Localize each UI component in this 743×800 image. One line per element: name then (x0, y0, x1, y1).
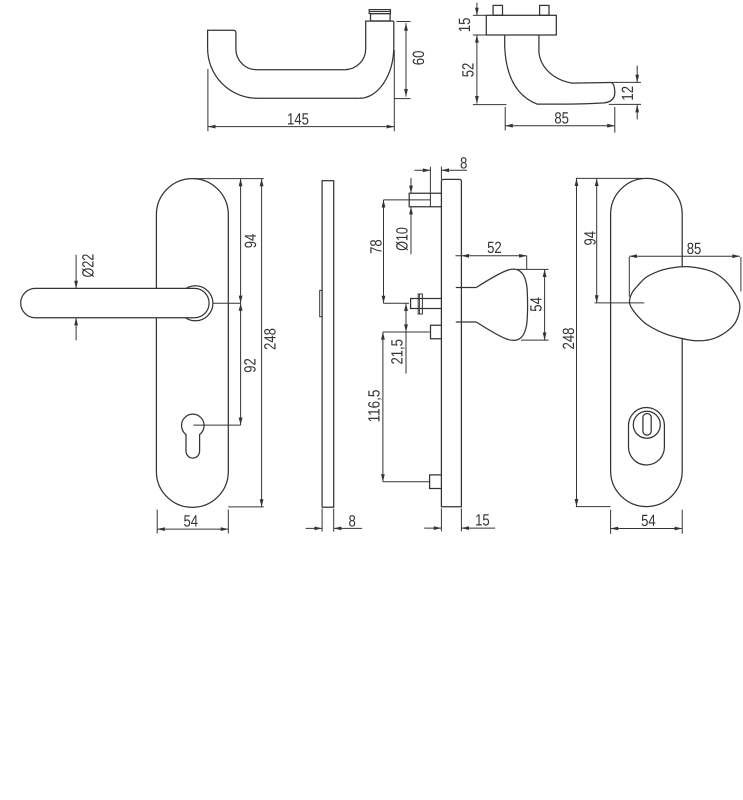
svg-text:Ø22: Ø22 (80, 254, 98, 278)
svg-text:60: 60 (410, 51, 428, 66)
svg-text:145: 145 (287, 111, 309, 129)
svg-text:94: 94 (582, 231, 600, 246)
svg-text:15: 15 (456, 18, 474, 33)
svg-text:15: 15 (475, 511, 490, 529)
svg-text:54: 54 (641, 512, 656, 530)
svg-text:92: 92 (241, 358, 259, 373)
svg-text:248: 248 (261, 328, 279, 350)
svg-text:248: 248 (560, 328, 578, 350)
svg-text:54: 54 (528, 297, 546, 312)
svg-text:52: 52 (460, 63, 478, 78)
svg-text:8: 8 (460, 154, 467, 172)
svg-text:116,5: 116,5 (365, 390, 383, 423)
svg-text:21,5: 21,5 (389, 339, 407, 365)
svg-text:8: 8 (348, 512, 355, 530)
svg-text:Ø10: Ø10 (393, 227, 411, 251)
svg-text:85: 85 (687, 240, 702, 258)
svg-text:94: 94 (242, 234, 260, 249)
svg-text:78: 78 (367, 239, 385, 254)
svg-text:85: 85 (554, 110, 569, 128)
svg-text:54: 54 (184, 513, 199, 531)
svg-text:12: 12 (619, 86, 637, 101)
svg-text:52: 52 (487, 239, 502, 257)
